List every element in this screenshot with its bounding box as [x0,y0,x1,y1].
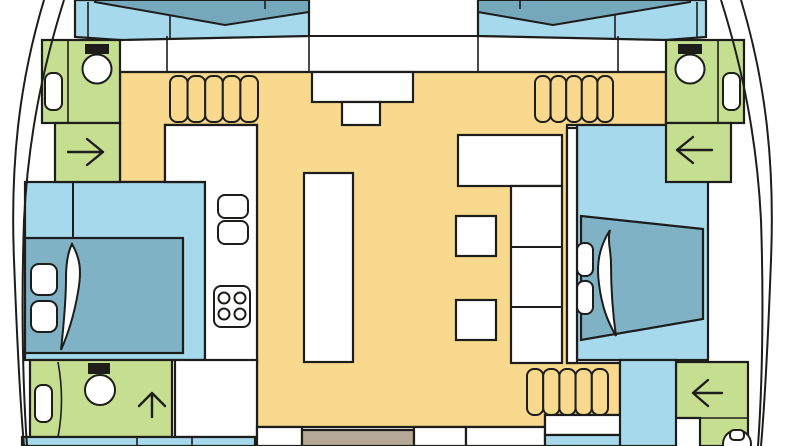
settee-top [458,135,562,186]
coffee-table [456,216,496,256]
coffee-table [456,300,496,340]
galley-basin [218,195,248,218]
aft-landing-starboard [545,415,621,435]
aft-passage-starboard [620,360,676,446]
step-tread [576,369,592,415]
bathroom-starboard-aft [676,362,751,446]
step-tread [205,76,223,122]
sink-icon [35,385,52,422]
step-tread [223,76,241,122]
pillow [31,264,57,295]
stove-icon [214,286,250,327]
bathroom-port-aft [30,360,172,437]
salon-wall [567,128,577,363]
settee-side [511,186,562,363]
step-tread [551,76,567,122]
cockpit-doormat [302,430,414,446]
step-tread [597,76,613,122]
pillow [31,301,57,332]
toilet-icon [676,55,705,84]
cockpit-seat [414,427,466,446]
sink-icon [723,73,740,110]
pillow [577,243,593,276]
transom-step-port [22,437,255,446]
step-tread [240,76,258,122]
bow-cabin-port [75,0,309,40]
toilet-tank [678,44,702,54]
cockpit-seat [257,427,302,446]
step-tread [170,76,188,122]
toilet-tank [88,363,110,374]
step-tread [559,369,575,415]
transom-step-starboard [545,435,621,446]
step-tread [566,76,582,122]
nav-console [312,72,413,102]
bow-cabin-starboard [478,0,706,40]
stairs-port-forward [170,76,258,122]
companionway-starboard-forward [666,123,731,182]
bathroom-port-forward [42,40,120,182]
step-tread [582,76,598,122]
catamaran-floorplan [0,0,785,446]
step-tread [535,76,551,122]
step-tread [543,369,559,415]
pillow [577,281,593,314]
cockpit-seat [466,427,545,446]
galley-basin [218,221,248,244]
galley-island [304,173,353,362]
stairs-starboard-aft [527,369,608,415]
salon-seating [456,128,577,363]
step-tread [188,76,206,122]
aft-landing-port [175,360,257,437]
toilet-icon [83,55,112,84]
step-tread [527,369,543,415]
sink-icon [45,73,62,110]
bathroom-starboard-forward [666,40,744,182]
nav-seat [342,102,380,125]
toilet-icon [85,375,115,405]
cabin-port [25,182,205,360]
toilet-tank [85,44,109,54]
toilet-lid [730,430,744,440]
stairs-starboard-forward [535,76,613,122]
foredeck [167,36,618,72]
floorplan-canvas [0,0,785,446]
step-tread [592,369,608,415]
